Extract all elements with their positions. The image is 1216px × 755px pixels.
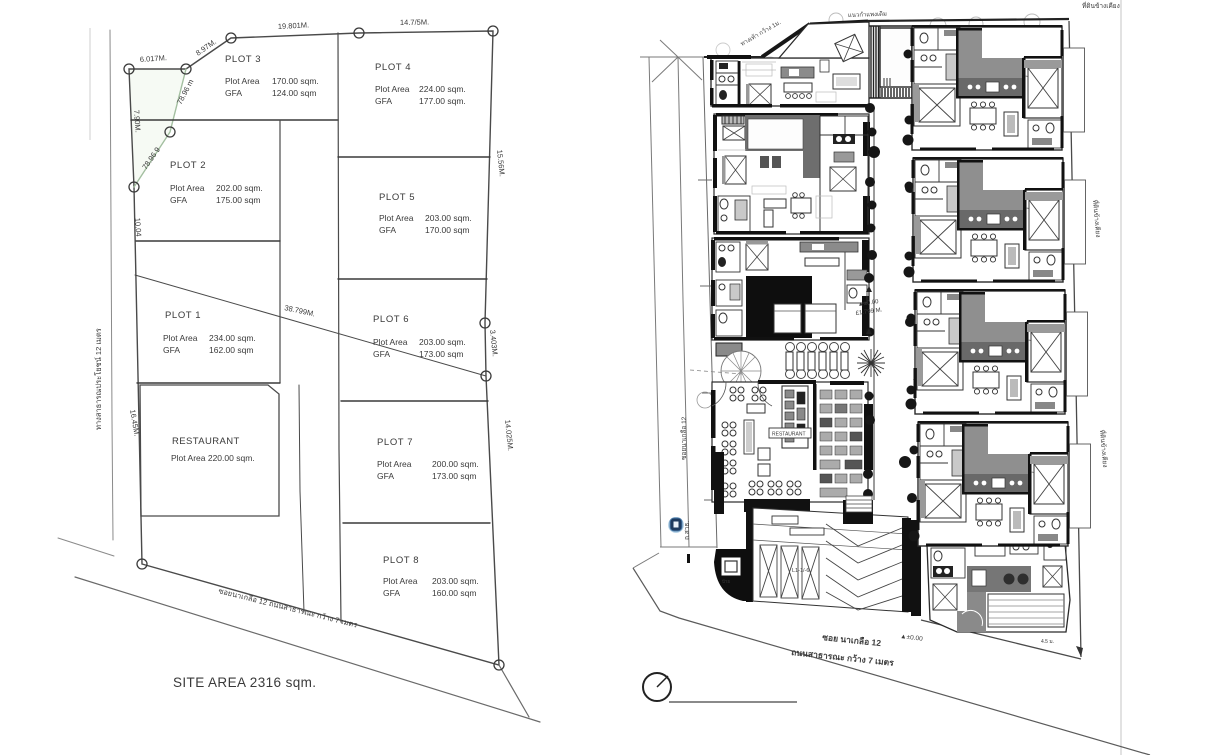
svg-text:162.00 sqm: 162.00 sqm	[209, 345, 253, 355]
svg-text:177.00 sqm.: 177.00 sqm.	[419, 96, 466, 106]
svg-text:L1-1/-6: L1-1/-6	[792, 568, 809, 574]
svg-text:PLOT 6: PLOT 6	[373, 314, 409, 325]
svg-text:ป้าย: ป้าย	[722, 579, 730, 584]
svg-text:Plot Area: Plot Area	[379, 213, 414, 223]
svg-text:GFA: GFA	[375, 96, 392, 106]
svg-text:GFA: GFA	[383, 588, 400, 598]
svg-text:ทางสาธารณประโยชน์ 12 เมตร: ทางสาธารณประโยชน์ 12 เมตร	[94, 328, 103, 430]
svg-text:Plot Area: Plot Area	[375, 84, 410, 94]
svg-text:PLOT 1: PLOT 1	[165, 310, 201, 321]
svg-text:ซอยนาเกลือ 12: ซอยนาเกลือ 12	[680, 416, 688, 460]
svg-text:PLOT 8: PLOT 8	[383, 555, 419, 566]
svg-text:GFA: GFA	[170, 195, 187, 205]
svg-text:Plot Area: Plot Area	[377, 459, 412, 469]
svg-text:PLOT 2: PLOT 2	[170, 160, 206, 171]
svg-text:Plot Area: Plot Area	[373, 337, 408, 347]
svg-text:224.00 sqm.: 224.00 sqm.	[419, 84, 466, 94]
svg-text:GFA: GFA	[379, 225, 396, 235]
svg-text:173.00 sqm: 173.00 sqm	[419, 349, 463, 359]
svg-text:Plot Area: Plot Area	[225, 76, 260, 86]
svg-text:GFA: GFA	[377, 471, 394, 481]
svg-text:PLOT 3: PLOT 3	[225, 54, 261, 65]
svg-text:234.00 sqm.: 234.00 sqm.	[209, 333, 256, 343]
svg-text:GFA: GFA	[163, 345, 180, 355]
svg-text:PLOT 7: PLOT 7	[377, 437, 413, 448]
svg-text:ถ.สาธ.: ถ.สาธ.	[684, 521, 691, 540]
svg-text:19.801M.: 19.801M.	[278, 20, 310, 31]
svg-text:6.017M.: 6.017M.	[140, 53, 168, 64]
svg-text:170.00 sqm.: 170.00 sqm.	[272, 76, 319, 86]
svg-text:RESTAURANT: RESTAURANT	[772, 432, 806, 438]
svg-text:203.00 sqm.: 203.00 sqm.	[432, 576, 479, 586]
svg-text:202.00 sqm.: 202.00 sqm.	[216, 183, 263, 193]
svg-text:7.90M.: 7.90M.	[132, 110, 143, 134]
svg-text:Plot Area 220.00 sqm.: Plot Area 220.00 sqm.	[171, 453, 255, 463]
svg-text:173.00 sqm: 173.00 sqm	[432, 471, 476, 481]
svg-text:แนวกำแพงเดิม: แนวกำแพงเดิม	[848, 11, 887, 19]
svg-text:175.00 sqm: 175.00 sqm	[216, 195, 260, 205]
svg-text:GFA: GFA	[225, 88, 242, 98]
svg-text:Plot Area: Plot Area	[163, 333, 198, 343]
svg-text:GFA: GFA	[373, 349, 390, 359]
svg-text:RESTAURANT: RESTAURANT	[172, 436, 240, 447]
svg-text:4.5 ม.: 4.5 ม.	[1041, 639, 1054, 645]
svg-text:PLOT 4: PLOT 4	[375, 62, 411, 73]
svg-text:Plot Area: Plot Area	[383, 576, 418, 586]
svg-text:160.00 sqm: 160.00 sqm	[432, 588, 476, 598]
svg-text:203.00 sqm.: 203.00 sqm.	[425, 213, 472, 223]
svg-text:200.00 sqm.: 200.00 sqm.	[432, 459, 479, 469]
svg-text:10.04: 10.04	[133, 218, 143, 237]
svg-text:PLOT 5: PLOT 5	[379, 192, 415, 203]
svg-text:203.00 sqm.: 203.00 sqm.	[419, 337, 466, 347]
svg-text:SITE AREA 2316 sqm.: SITE AREA 2316 sqm.	[173, 675, 316, 690]
svg-text:170.00 sqm: 170.00 sqm	[425, 225, 469, 235]
svg-text:ที่ดินข้างเคียง: ที่ดินข้างเคียง	[1082, 1, 1120, 10]
svg-text:124.00 sqm: 124.00 sqm	[272, 88, 316, 98]
svg-text:Plot Area: Plot Area	[170, 183, 205, 193]
svg-text:14.7/5M.: 14.7/5M.	[400, 17, 429, 27]
